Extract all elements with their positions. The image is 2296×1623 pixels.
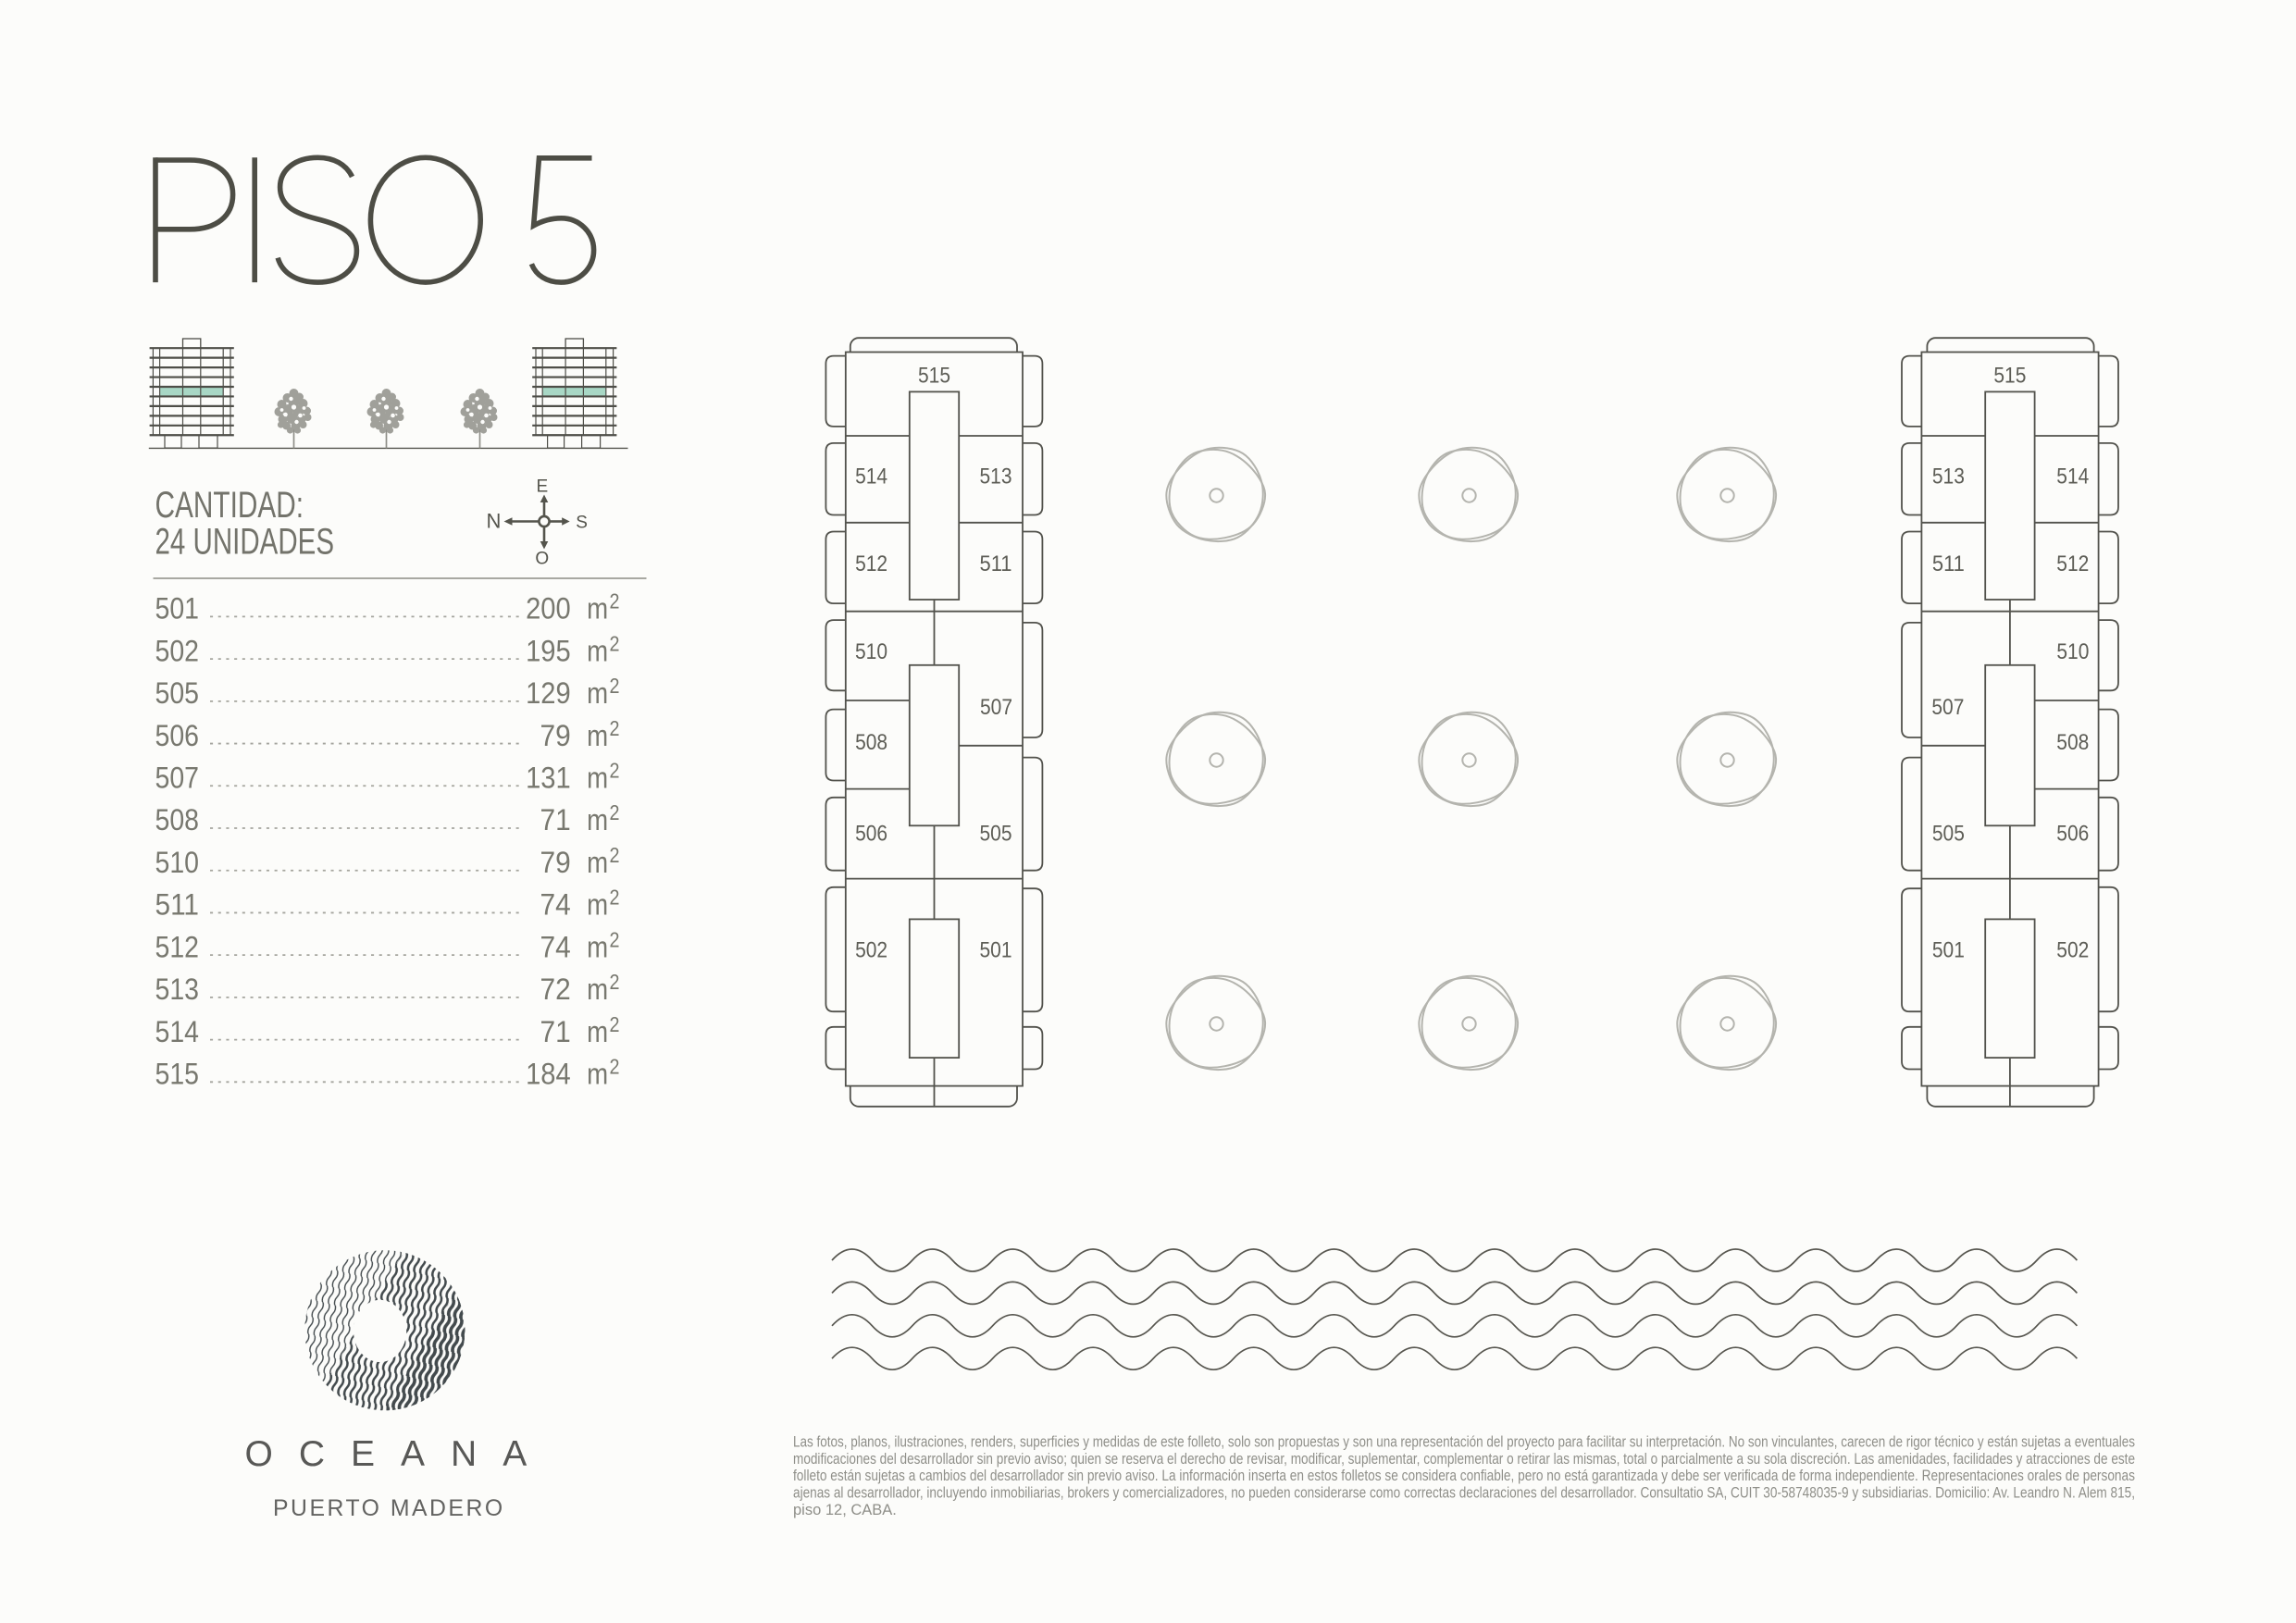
svg-text:CANTIDAD:: CANTIDAD: — [155, 485, 304, 526]
svg-text:515: 515 — [1993, 364, 2026, 389]
svg-text:508: 508 — [855, 730, 887, 755]
svg-text:129: 129 — [526, 676, 571, 710]
svg-text:79: 79 — [540, 719, 571, 752]
svg-text:513: 513 — [155, 973, 200, 1006]
svg-text:512: 512 — [2056, 551, 2089, 576]
svg-text:184: 184 — [526, 1058, 571, 1091]
svg-text:m: m — [587, 592, 608, 626]
svg-text:513: 513 — [1932, 465, 1965, 489]
svg-text:506: 506 — [155, 719, 200, 752]
svg-text:ajenas al desarrollador, inclu: ajenas al desarrollador, incluyendo inmo… — [793, 1485, 2135, 1502]
svg-text:514: 514 — [155, 1015, 200, 1048]
svg-text:502: 502 — [2056, 938, 2089, 963]
svg-text:505: 505 — [980, 822, 1012, 847]
svg-text:71: 71 — [540, 1015, 571, 1048]
svg-text:modificaciones del desarrollad: modificaciones del desarrollador sin pre… — [793, 1451, 2135, 1468]
svg-text:2: 2 — [610, 716, 620, 740]
svg-text:2: 2 — [610, 1055, 620, 1079]
svg-text:502: 502 — [155, 634, 200, 667]
svg-text:2: 2 — [610, 927, 620, 951]
svg-text:m: m — [587, 719, 608, 752]
svg-text:2: 2 — [610, 1012, 620, 1036]
svg-text:505: 505 — [155, 676, 200, 710]
svg-text:514: 514 — [2056, 465, 2089, 489]
svg-text:m: m — [587, 888, 608, 922]
svg-text:501: 501 — [1932, 938, 1965, 963]
svg-text:Las fotos, planos, ilustracion: Las fotos, planos, ilustraciones, render… — [793, 1434, 2135, 1451]
svg-text:folleto están sujetas a cambio: folleto están sujetas a cambios del desa… — [793, 1468, 2135, 1484]
svg-text:2: 2 — [610, 800, 620, 824]
svg-text:71: 71 — [540, 803, 571, 836]
svg-text:506: 506 — [855, 822, 887, 847]
svg-text:piso 12, CABA.: piso 12, CABA. — [793, 1502, 897, 1518]
svg-text:m: m — [587, 803, 608, 836]
svg-text:74: 74 — [540, 930, 571, 963]
svg-text:502: 502 — [855, 938, 887, 963]
svg-text:508: 508 — [155, 803, 200, 836]
svg-text:195: 195 — [526, 634, 571, 667]
svg-text:E: E — [536, 477, 548, 497]
svg-text:m: m — [587, 846, 608, 879]
svg-text:m: m — [587, 973, 608, 1006]
svg-text:511: 511 — [980, 551, 1012, 576]
svg-text:514: 514 — [855, 465, 887, 489]
svg-text:m: m — [587, 634, 608, 667]
svg-text:2: 2 — [610, 674, 620, 698]
svg-text:2: 2 — [610, 589, 620, 613]
svg-text:2: 2 — [610, 631, 620, 655]
svg-text:m: m — [587, 761, 608, 794]
svg-text:505: 505 — [1932, 822, 1965, 847]
svg-text:2: 2 — [610, 970, 620, 994]
svg-text:m: m — [587, 930, 608, 963]
svg-text:501: 501 — [980, 938, 1012, 963]
svg-text:507: 507 — [980, 695, 1012, 720]
svg-text:510: 510 — [155, 846, 200, 879]
svg-text:510: 510 — [2056, 639, 2089, 664]
svg-text:O: O — [535, 550, 549, 569]
svg-text:515: 515 — [155, 1058, 200, 1091]
svg-text:512: 512 — [855, 551, 887, 576]
svg-text:131: 131 — [526, 761, 571, 794]
svg-text:511: 511 — [1932, 551, 1965, 576]
svg-text:m: m — [587, 1015, 608, 1048]
svg-text:200: 200 — [526, 592, 571, 626]
svg-text:513: 513 — [980, 465, 1012, 489]
svg-text:m: m — [587, 1058, 608, 1091]
svg-text:24 UNIDADES: 24 UNIDADES — [155, 522, 335, 563]
svg-text:PUERTO MADERO: PUERTO MADERO — [273, 1496, 505, 1521]
svg-text:72: 72 — [540, 973, 571, 1006]
svg-text:79: 79 — [540, 846, 571, 879]
svg-text:2: 2 — [610, 886, 620, 910]
svg-text:512: 512 — [155, 930, 200, 963]
svg-text:507: 507 — [1931, 695, 1964, 720]
svg-text:501: 501 — [155, 592, 200, 626]
svg-text:507: 507 — [155, 761, 200, 794]
svg-text:2: 2 — [610, 843, 620, 867]
svg-text:S: S — [576, 513, 588, 532]
svg-text:2: 2 — [610, 758, 620, 782]
svg-text:N: N — [487, 510, 502, 533]
svg-text:508: 508 — [2056, 730, 2089, 755]
svg-text:510: 510 — [855, 639, 887, 664]
svg-text:m: m — [587, 676, 608, 710]
svg-text:74: 74 — [540, 888, 571, 922]
svg-text:515: 515 — [918, 364, 950, 389]
svg-text:506: 506 — [2056, 822, 2089, 847]
svg-text:OCEANA: OCEANA — [245, 1434, 553, 1474]
svg-text:511: 511 — [155, 888, 200, 922]
